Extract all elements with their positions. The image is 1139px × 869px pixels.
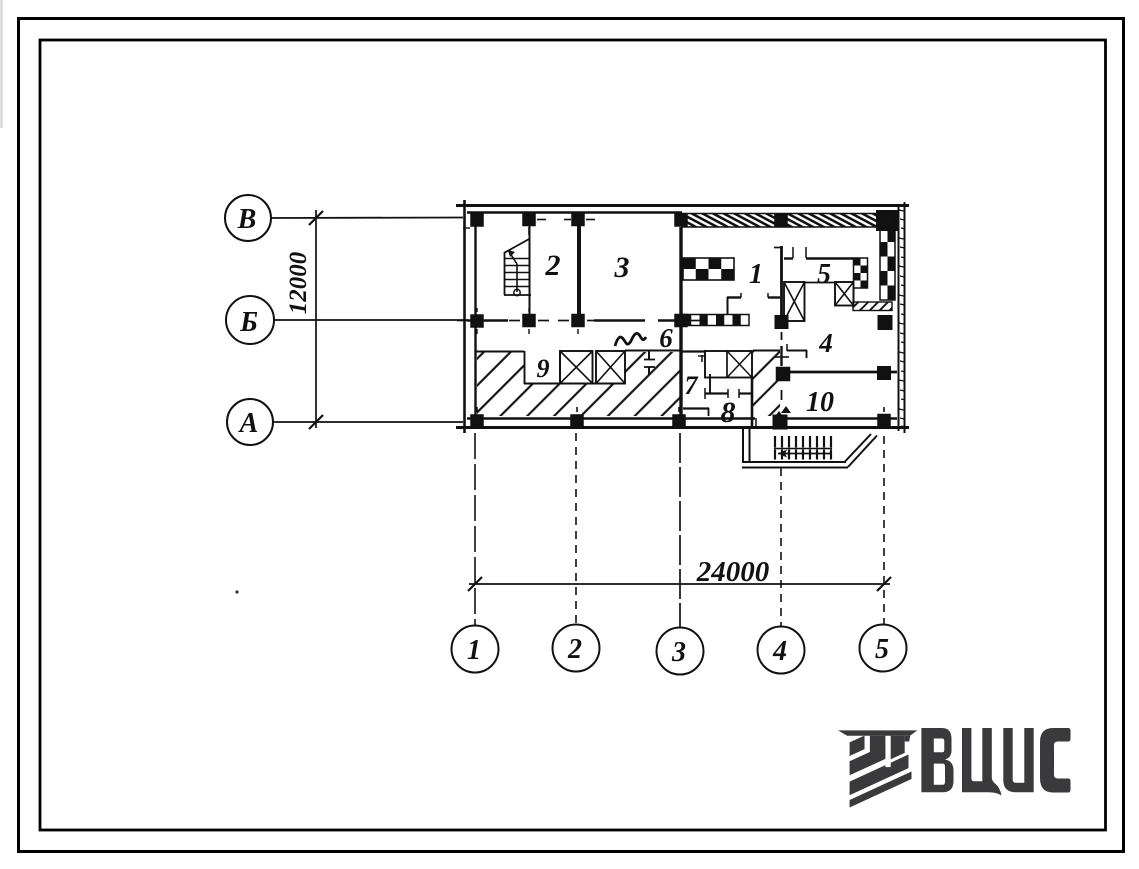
svg-text:2: 2 [545, 249, 561, 282]
svg-text:4: 4 [772, 636, 787, 667]
svg-text:7: 7 [685, 371, 699, 400]
svg-text:3: 3 [614, 251, 630, 284]
svg-text:1: 1 [467, 635, 481, 666]
svg-text:6: 6 [659, 323, 673, 353]
svg-text:2: 2 [567, 634, 582, 665]
svg-text:8: 8 [721, 396, 736, 429]
svg-text:5: 5 [817, 259, 831, 290]
svg-text:9: 9 [537, 354, 550, 383]
svg-text:3: 3 [671, 637, 686, 668]
svg-text:В: В [237, 204, 257, 235]
svg-text:12000: 12000 [285, 251, 312, 314]
svg-text:4: 4 [818, 328, 833, 358]
svg-text:5: 5 [875, 634, 889, 665]
svg-text:24000: 24000 [696, 556, 770, 588]
svg-text:А: А [238, 408, 259, 439]
svg-text:1: 1 [749, 259, 763, 290]
svg-text:Б: Б [239, 307, 258, 338]
svg-text:10: 10 [806, 387, 834, 418]
